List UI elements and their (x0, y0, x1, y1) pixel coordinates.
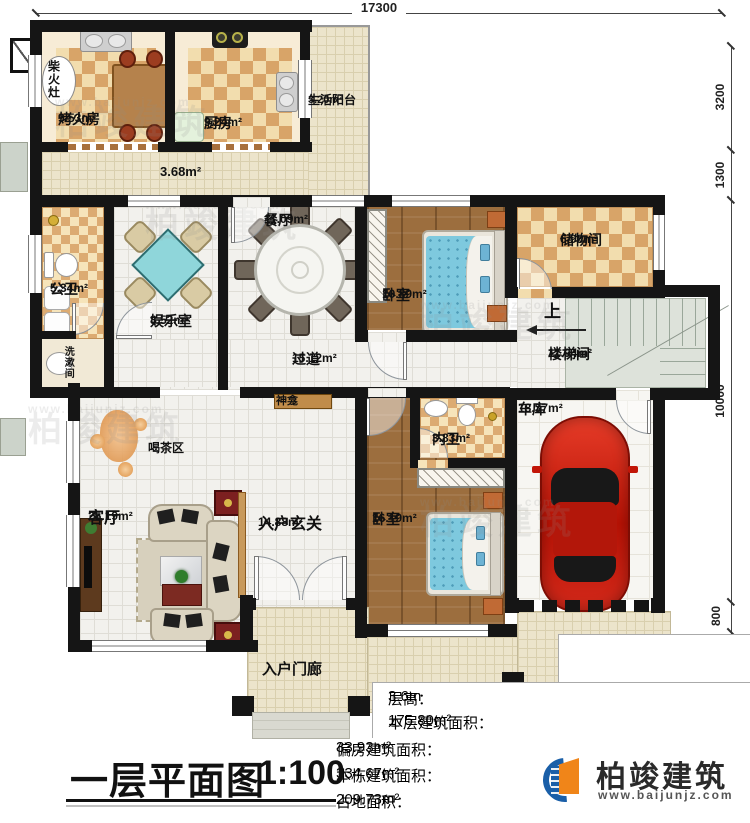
sink-icon (424, 400, 448, 417)
tea-seat (134, 418, 147, 431)
tea-seat (118, 462, 133, 477)
porch-pillar (348, 696, 370, 716)
car-windshield (551, 468, 619, 506)
wall (505, 388, 616, 400)
wardrobe-icon (417, 468, 505, 488)
threshold (212, 144, 270, 150)
tv-feature-wall (238, 492, 246, 598)
dim-right-1300: 1300 (713, 145, 727, 205)
wall (104, 207, 114, 339)
sink-bowl (279, 93, 294, 107)
window (66, 515, 80, 587)
coffee-table-lower (162, 584, 202, 606)
stair-treads-upper (565, 298, 706, 346)
wall (505, 287, 518, 298)
balcony-floor (308, 25, 370, 195)
bed-pillow (476, 526, 485, 540)
faucet-gold (48, 215, 59, 226)
wall (30, 20, 42, 195)
sink-bowl (85, 34, 103, 48)
wall (165, 32, 175, 144)
brand-logo-icon (543, 756, 591, 806)
wall (552, 287, 665, 298)
ac-pad (0, 418, 26, 456)
toilet-bowl (458, 404, 476, 426)
stair-arrow-line (536, 329, 586, 331)
window (388, 624, 488, 637)
wall (218, 207, 228, 390)
wall (653, 388, 665, 612)
wall (505, 395, 517, 612)
window (312, 195, 364, 207)
nightstand-icon (487, 305, 507, 322)
nightstand-icon (483, 492, 503, 509)
window (28, 55, 42, 107)
wall (355, 395, 367, 638)
sofa-icon (148, 504, 214, 542)
sink-bowl (108, 34, 126, 48)
bed-headboard (490, 512, 501, 596)
wall (355, 195, 367, 342)
sofa-pillow (181, 509, 199, 525)
wall (505, 195, 517, 298)
wood-table-icon (112, 64, 170, 128)
fridge-icon (174, 112, 204, 142)
title-underline (66, 799, 336, 802)
plant-icon (175, 570, 188, 583)
door-leaf (403, 342, 407, 380)
end-table-knob (224, 499, 232, 507)
window (298, 60, 312, 118)
porch-pillar (232, 696, 254, 716)
tea-table-blob (100, 410, 138, 462)
stool-icon (146, 124, 163, 142)
stool-icon (119, 124, 136, 142)
stool-icon (119, 50, 136, 68)
tea-seat (90, 434, 105, 449)
end-table-knob (224, 631, 232, 639)
sofa-pillow (185, 613, 203, 628)
car-mirror (532, 466, 542, 473)
wall (406, 330, 517, 342)
window (128, 195, 180, 207)
wall (30, 387, 160, 398)
door-gap (418, 460, 448, 468)
wall (653, 388, 720, 400)
dimension-right-line (731, 46, 732, 705)
nightstand-icon (483, 598, 503, 615)
wall (42, 331, 76, 339)
stool-icon (146, 50, 163, 68)
bed-pillow (476, 552, 485, 566)
dim-right-3200: 3200 (713, 67, 727, 127)
sofa-icon (206, 520, 242, 622)
sofa-pillow (213, 575, 230, 593)
wall (708, 285, 720, 400)
bed-pillow (480, 276, 490, 293)
dimension-top-label: 17300 (352, 0, 406, 15)
logo-building-blue (551, 766, 559, 794)
tv-icon (84, 546, 92, 588)
burner (232, 32, 243, 43)
door-gap (368, 388, 406, 397)
wall (448, 458, 517, 468)
toilet-bowl (55, 253, 78, 277)
wall (30, 142, 68, 152)
garage-door-dashed (519, 600, 651, 612)
wall (651, 598, 665, 613)
window (66, 421, 80, 483)
car-mirror (628, 466, 638, 473)
window (92, 640, 206, 652)
door-leaf (231, 207, 235, 243)
wall (158, 142, 212, 152)
window (28, 235, 42, 293)
stair-arrow-head (526, 325, 537, 335)
burner (216, 32, 227, 43)
toilet-icon (44, 252, 54, 278)
wall (355, 330, 368, 342)
wall (410, 398, 420, 466)
wall (410, 458, 418, 468)
door-leaf (116, 335, 152, 339)
entry-door-leaf (342, 556, 347, 600)
sofa-pillow (163, 613, 181, 628)
sink-bowl (279, 76, 294, 90)
car-roof (553, 502, 617, 558)
door-gap (233, 197, 270, 207)
wall (30, 20, 312, 32)
wall (505, 598, 519, 613)
ac-pad (0, 142, 28, 192)
porch-steps (252, 712, 350, 739)
title-underline-shadow (66, 805, 336, 807)
wall (240, 598, 256, 610)
dining-table-center (291, 261, 309, 279)
car-rear-glass (554, 556, 616, 582)
info-box-upper (558, 634, 750, 686)
window (653, 215, 665, 270)
door-leaf (647, 400, 651, 434)
door-gap (616, 390, 650, 400)
wall (30, 195, 42, 395)
stair-treads-right (660, 346, 706, 388)
door-gap (368, 332, 406, 342)
bed-pillow (480, 244, 490, 261)
entry-door-leaf (254, 556, 259, 600)
floor-plan: 17300 3200 1300 10000 800 1200 600 柏竣建筑w… (0, 0, 750, 823)
wall (270, 142, 312, 152)
nightstand-icon (487, 211, 507, 228)
window (392, 195, 470, 207)
door-gap (518, 289, 552, 298)
threshold (68, 144, 158, 150)
drain-gold (488, 412, 497, 421)
